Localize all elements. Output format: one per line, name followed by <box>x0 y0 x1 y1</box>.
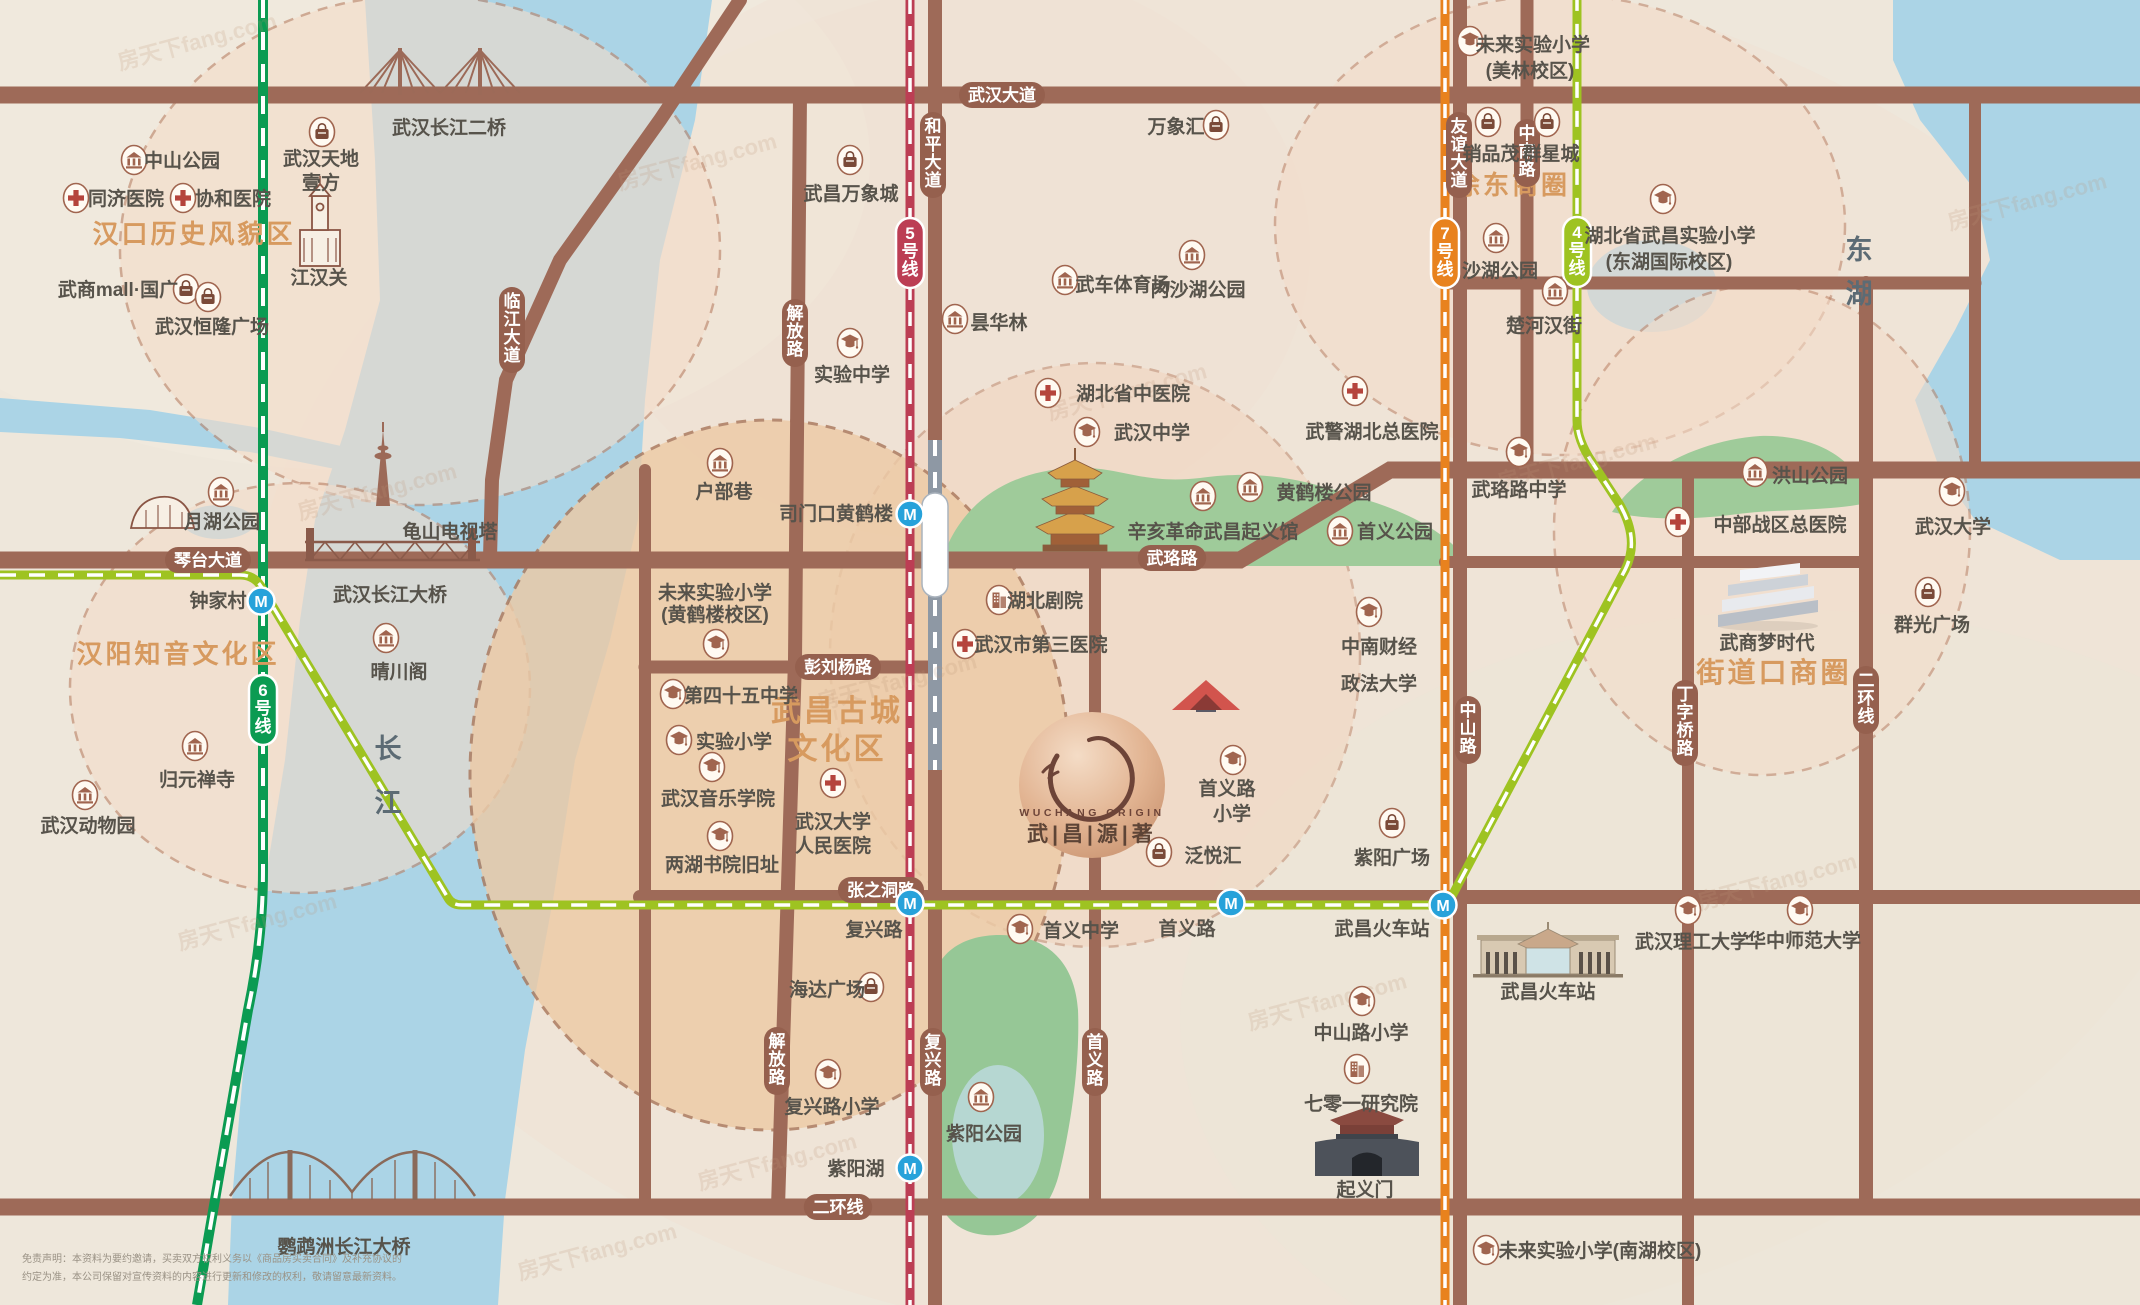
poi-label: 沙湖公园 <box>1462 260 1538 282</box>
road-label: 二环线 <box>1858 671 1875 726</box>
poi-label: 中山路小学 <box>1313 1021 1408 1044</box>
road-label-pill: 首义路 <box>1082 1028 1108 1096</box>
poi-label: 晴川阁 <box>370 660 427 683</box>
district-label: 文化区 <box>788 732 887 766</box>
park-icon <box>183 732 208 761</box>
metro-station: M紫阳湖 <box>827 1155 923 1182</box>
build-icon <box>1345 1055 1370 1084</box>
district-label: 汉口历史风貌区 <box>92 219 295 249</box>
shop-icon <box>1147 838 1172 867</box>
poi-label: 政法大学 <box>1341 672 1417 695</box>
hosp-icon <box>1343 377 1368 406</box>
school-icon <box>661 680 686 709</box>
road-label: 中山路 <box>1460 700 1478 756</box>
road-label: 武珞路 <box>1147 548 1199 568</box>
water-label: 东 <box>1846 234 1873 265</box>
road-label: 彭刘杨路 <box>804 657 873 677</box>
school-icon <box>1940 477 1965 506</box>
poi-label: 紫阳广场 <box>1354 846 1430 869</box>
shop-icon <box>838 146 863 175</box>
poi-label: 海达广场 <box>789 978 865 1001</box>
disclaimer-text: 约定为准，本公司保留对宣传资料的内容进行更新和修改的权利，敬请留意最新资料。 <box>22 1270 402 1283</box>
poi-label: 复兴路小学 <box>783 1095 879 1118</box>
poi-label: 同济医院 <box>88 187 164 210</box>
hosp-icon <box>64 184 89 213</box>
school-icon <box>1075 418 1100 447</box>
poi-label: 紫阳公园 <box>946 1123 1022 1145</box>
road-label: 首义路 <box>1087 1032 1105 1088</box>
landmark-label: 武汉长江二桥 <box>392 116 507 139</box>
metro-m-letter: M <box>1436 898 1449 915</box>
poi-label: 户部巷 <box>695 480 753 503</box>
logo-cn: 武|昌|源|著 <box>1027 823 1157 846</box>
road-label-pill: 武汉大道 <box>959 82 1045 108</box>
station-label: 司门口黄鹤楼 <box>779 502 893 525</box>
poi-label: 湖北省武昌实验小学 <box>1584 224 1755 247</box>
road-label: 黄鹤楼隧道 <box>927 497 944 589</box>
poi-label: 华中师范大学 <box>1747 929 1861 952</box>
poi-label: 泛悦汇 <box>1184 844 1241 867</box>
poi-label: 人民医院 <box>795 834 871 857</box>
shop-icon <box>1916 578 1941 607</box>
poi-label: 洪山公园 <box>1772 465 1848 487</box>
hankou-district <box>120 0 720 505</box>
school-icon <box>1357 598 1382 627</box>
poi-label: 群星城 <box>1521 142 1579 165</box>
poi-label: 辛亥革命武昌起义馆 <box>1127 520 1298 543</box>
poi-label: (美林校区) <box>1486 59 1575 82</box>
poi-label: 小学 <box>1213 802 1251 825</box>
poi-label: 壹方 <box>302 171 340 194</box>
school-icon <box>1221 746 1246 775</box>
road-label-pill: 彭刘杨路 <box>795 654 881 680</box>
poi-label: 首义中学 <box>1043 919 1119 942</box>
poi-label: 武汉音乐学院 <box>661 787 775 810</box>
road-label: 复兴路 <box>924 1032 943 1088</box>
landmark-label: 武昌火车站 <box>1500 980 1595 1003</box>
park-icon <box>1328 517 1353 546</box>
district-label: 街道口商圈 <box>1695 656 1851 688</box>
project-logo: WUCHANG ORIGIN 武|昌|源|著 <box>1019 712 1165 858</box>
road-label-pill: 二环线 <box>1853 666 1879 734</box>
road-label: 临江大道 <box>504 291 521 365</box>
road-label: 解放路 <box>768 1031 787 1087</box>
poi-label: (黄鹤楼校区) <box>661 603 769 626</box>
poi-label: 武汉天地 <box>283 147 359 170</box>
road-label: 二环线 <box>813 1197 864 1217</box>
poi-label: 武汉动物园 <box>40 814 135 837</box>
landmark-label: 江汉关 <box>290 266 347 289</box>
shop-icon <box>1476 108 1501 137</box>
road-label-pill: 临江大道 <box>499 287 525 373</box>
logo-en: WUCHANG ORIGIN <box>1019 807 1164 819</box>
station-label: 复兴路 <box>844 918 903 941</box>
poi-label: 武汉理工大学 <box>1635 930 1749 953</box>
water-label: 长 <box>375 734 403 764</box>
metro-line-badge: 7号线 <box>1431 218 1459 288</box>
poi-label: 湖北省中医院 <box>1076 382 1190 405</box>
park-icon <box>708 449 733 478</box>
poi-label: (东湖国际校区) <box>1606 250 1733 273</box>
shop-icon <box>1380 809 1405 838</box>
hosp-icon <box>1666 508 1691 537</box>
poi-label: 湖北剧院 <box>1007 589 1083 612</box>
metro-m-letter: M <box>903 896 916 913</box>
poi-label: 首义公园 <box>1357 520 1433 543</box>
school-icon <box>700 753 725 782</box>
park-icon <box>209 478 234 507</box>
poi-label: 武汉市第三医院 <box>974 633 1107 656</box>
landmark-label: 武汉长江大桥 <box>333 583 448 606</box>
school-icon <box>1507 438 1532 467</box>
poi-label: 黄鹤楼公园 <box>1276 481 1371 504</box>
school-icon <box>1474 1236 1499 1265</box>
poi-label: 武汉恒隆广场 <box>155 315 269 338</box>
park-icon <box>1543 277 1568 306</box>
school-icon <box>838 329 863 358</box>
landmark-label: 龟山电视塔 <box>402 520 498 543</box>
road-label: 丁字桥路 <box>1677 685 1695 758</box>
park-icon <box>1238 473 1263 502</box>
poi-label: 武昌万象城 <box>803 182 898 205</box>
poi-label: 武警湖北总医院 <box>1305 420 1438 443</box>
road-label: 和平大道 <box>925 117 942 190</box>
station-label: 钟家村 <box>189 589 246 612</box>
poi-label: 群光广场 <box>1893 613 1970 636</box>
poi-label: 实验中学 <box>814 363 890 386</box>
park-icon <box>374 624 399 653</box>
tunnel-label-pill: 黄鹤楼隧道 <box>922 493 948 597</box>
metro-m-letter: M <box>1224 896 1237 913</box>
poi-label: 内沙湖公园 <box>1150 278 1245 301</box>
landmark-label: 起义门 <box>1335 1178 1393 1201</box>
poi-label: 中南财经 <box>1341 635 1417 658</box>
school-icon <box>708 822 733 851</box>
poi-label: 月湖公园 <box>183 511 260 533</box>
poi-label: 武珞路中学 <box>1471 478 1566 501</box>
school-icon <box>1788 896 1813 925</box>
poi-label: 武商mall·国广 <box>58 278 178 301</box>
metro-line-badge: 6号线 <box>249 675 277 745</box>
hosp-icon <box>821 769 846 798</box>
road-label-pill: 和平大道 <box>920 112 946 198</box>
poi-label: 未来实验小学 <box>1475 33 1590 56</box>
school-icon <box>1651 185 1676 214</box>
metro-station: M钟家村 <box>189 588 274 615</box>
poi-label: 实验小学 <box>696 730 772 753</box>
poi-label: 销品茂 <box>1462 142 1519 165</box>
school-icon <box>704 630 729 659</box>
road-label-pill: 解放路 <box>764 1027 790 1095</box>
district-label: 汉阳知音文化区 <box>76 639 279 669</box>
poi-label: 武汉大学 <box>795 810 871 833</box>
hanyang-district <box>70 483 530 893</box>
park-icon <box>969 1083 994 1112</box>
road-label-pill: 丁字桥路 <box>1672 680 1698 766</box>
park-icon <box>943 305 968 334</box>
park-icon <box>1191 482 1216 511</box>
park-icon <box>1053 266 1078 295</box>
shop-icon <box>196 283 221 312</box>
water-label: 江 <box>375 788 402 818</box>
metro-m-letter: M <box>903 507 916 524</box>
park-icon <box>73 781 98 810</box>
road-label-pill: 二环线 <box>804 1194 873 1220</box>
school-icon <box>1676 896 1701 925</box>
hosp-icon <box>1036 379 1061 408</box>
poi-label: 第四十五中学 <box>684 684 798 707</box>
poi-label: 武汉中学 <box>1114 421 1190 444</box>
shop-icon <box>1204 111 1229 140</box>
poi-label: 未来实验小学(南湖校区) <box>1498 1239 1702 1262</box>
landmark-label: 武商梦时代 <box>1719 631 1814 654</box>
road-label-pill: 复兴路 <box>920 1028 946 1096</box>
hosp-icon <box>171 184 196 213</box>
poi-label: 协和医院 <box>195 187 271 210</box>
poi-label: 归元禅寺 <box>159 768 235 791</box>
school-icon <box>667 726 692 755</box>
metro-m-letter: M <box>903 1161 916 1178</box>
park-icon <box>1180 241 1205 270</box>
poi-label: 昙华林 <box>970 311 1027 334</box>
metro-line-badge: 5号线 <box>896 218 924 288</box>
poi-label: 楚河汉街 <box>1506 314 1582 337</box>
metro-m-letter: M <box>254 594 267 611</box>
poi-label: 七零一研究院 <box>1304 1092 1418 1115</box>
poi-label: 武汉大学 <box>1915 515 1991 538</box>
poi-label: 万象汇 <box>1146 115 1204 138</box>
road-label-pill: 解放路 <box>782 299 808 367</box>
road-label: 解放路 <box>786 303 805 359</box>
school-icon <box>816 1060 841 1089</box>
disclaimer-text: 免责声明：本资料为要约邀请，买卖双方权利义务以《商品房买卖合同》及补充协议的 <box>22 1252 402 1265</box>
poi-label: 两湖书院旧址 <box>665 853 779 876</box>
poi-label: 首义路 <box>1198 777 1256 800</box>
road-label-pill: 琴台大道 <box>165 547 251 573</box>
poi-label: 中部战区总医院 <box>1713 513 1846 536</box>
map-canvas: WUCHANG ORIGIN 武|昌|源|著 房天下fang.com房天下fan… <box>0 0 2140 1305</box>
park-icon <box>1484 224 1509 253</box>
map-stage: WUCHANG ORIGIN 武|昌|源|著 房天下fang.com房天下fan… <box>0 0 2140 1305</box>
park-icon <box>1743 458 1768 487</box>
poi-label: 中山公园 <box>144 149 220 172</box>
shop-icon <box>1535 108 1560 137</box>
shop-icon <box>310 118 335 147</box>
metro-station: M司门口黄鹤楼 <box>779 501 924 528</box>
road-label: 琴台大道 <box>174 550 242 570</box>
park-icon <box>122 146 147 175</box>
road-label-pill: 武珞路 <box>1138 545 1207 571</box>
station-label: 武昌火车站 <box>1334 917 1429 940</box>
school-icon <box>1008 915 1033 944</box>
station-label: 首义路 <box>1158 917 1216 940</box>
poi-label: 未来实验小学 <box>657 581 772 604</box>
road-label-pill: 中山路 <box>1455 696 1481 764</box>
water-label: 湖 <box>1846 279 1873 309</box>
road-label: 武汉大道 <box>968 85 1036 105</box>
school-icon <box>1350 987 1375 1016</box>
station-label: 紫阳湖 <box>827 1158 884 1180</box>
